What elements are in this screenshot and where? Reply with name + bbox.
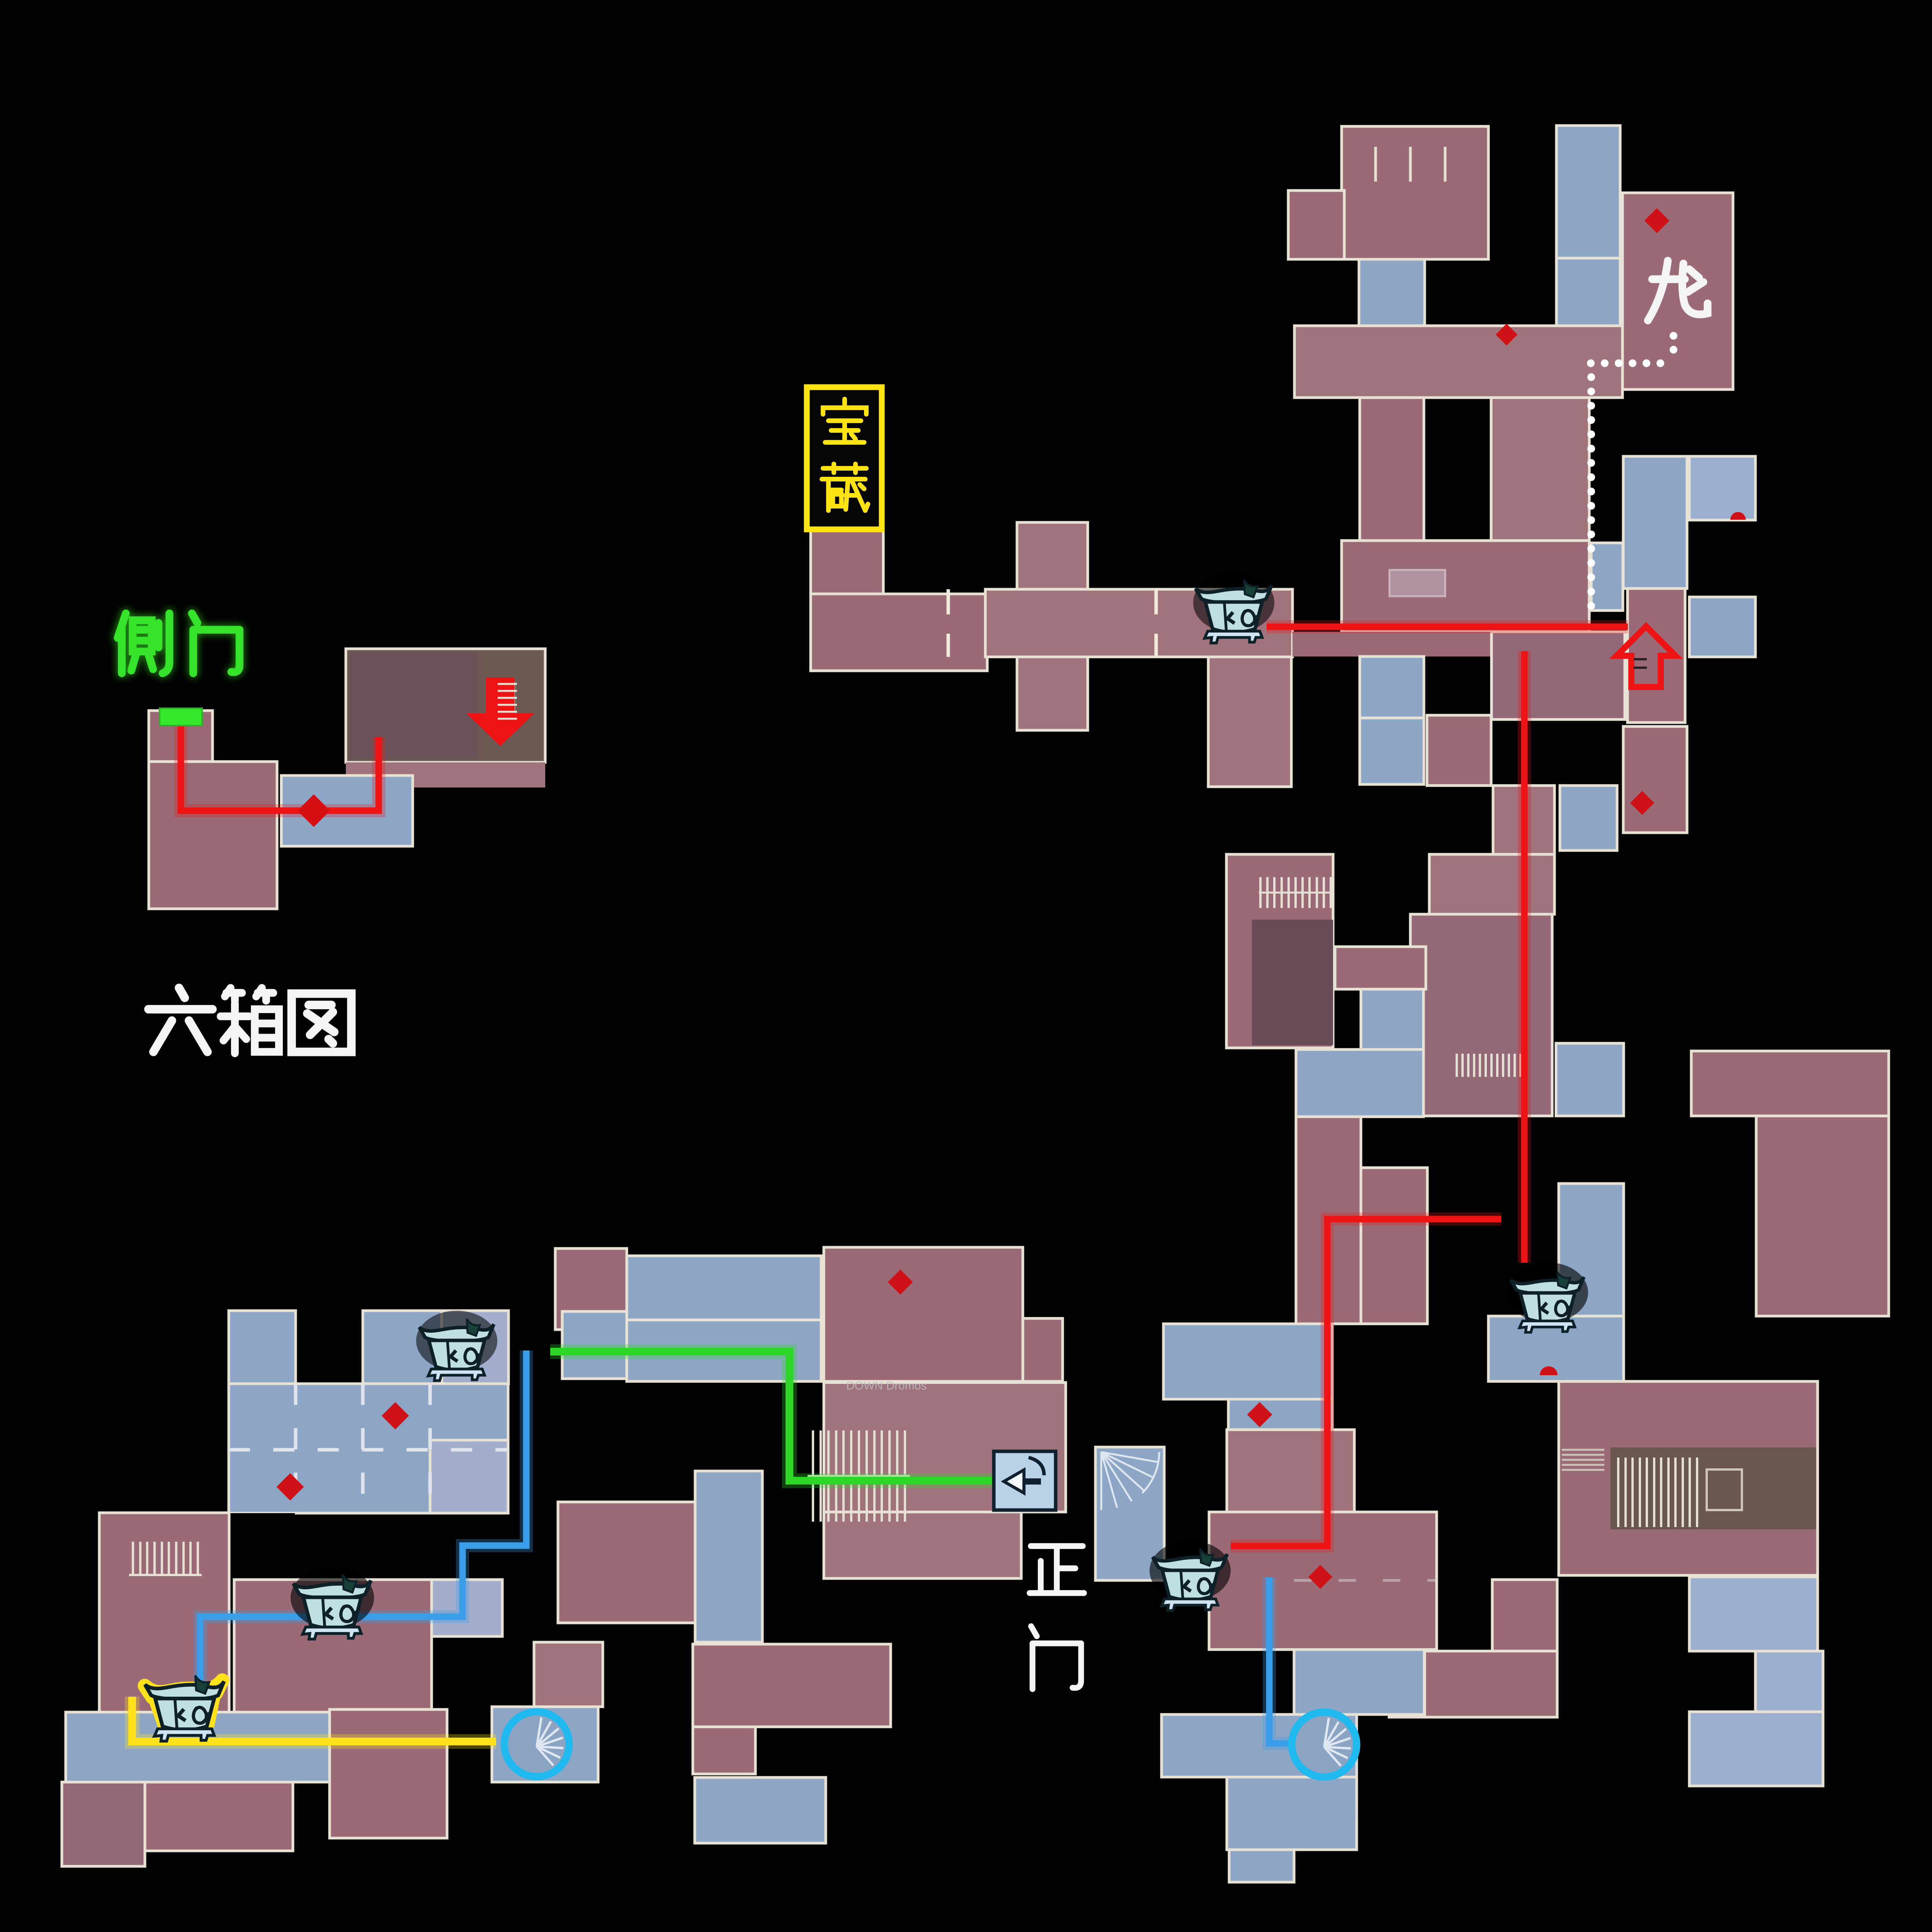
svg-text:DOWN Dromos: DOWN Dromos: [846, 1379, 927, 1392]
